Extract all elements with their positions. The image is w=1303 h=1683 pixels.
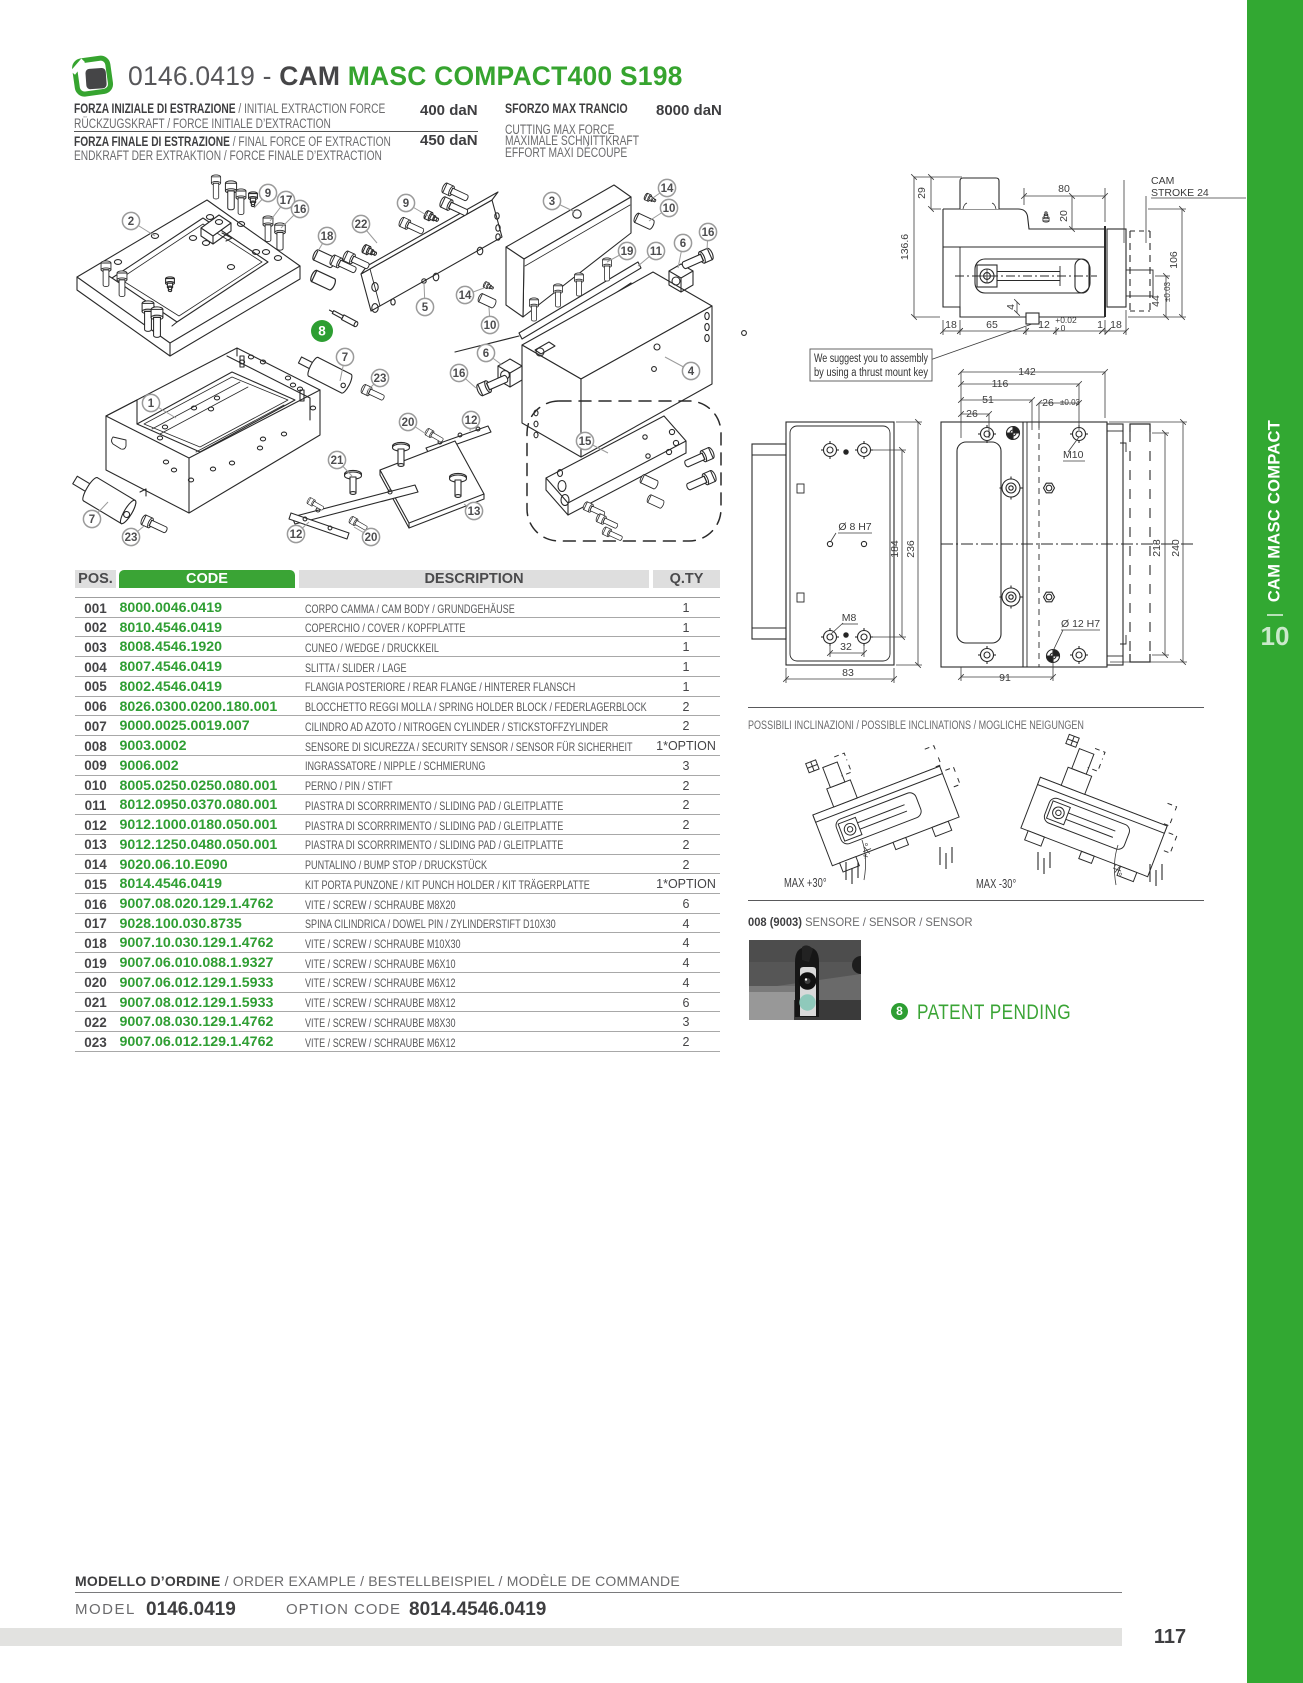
svg-text:20: 20 — [402, 417, 415, 429]
svg-text:51: 51 — [982, 394, 994, 406]
svg-text:Ø 8 H7: Ø 8 H7 — [838, 521, 871, 533]
svg-text:18: 18 — [1110, 319, 1122, 331]
svg-text:16: 16 — [453, 368, 466, 380]
svg-text:80: 80 — [1058, 183, 1070, 195]
svg-text:7: 7 — [342, 352, 348, 364]
svg-text:218: 218 — [1151, 539, 1163, 557]
svg-text:CAM: CAM — [1151, 175, 1174, 187]
svg-text:12: 12 — [290, 529, 303, 541]
svg-text:23: 23 — [374, 373, 387, 385]
svg-text:0: 0 — [1061, 323, 1066, 333]
svg-text:8: 8 — [318, 324, 326, 339]
svg-text:26: 26 — [966, 408, 978, 420]
svg-text:M8: M8 — [842, 612, 857, 624]
svg-text:16: 16 — [294, 204, 307, 216]
svg-text:Ø 12 H7: Ø 12 H7 — [1061, 618, 1100, 630]
svg-text:10: 10 — [484, 320, 497, 332]
svg-text:14: 14 — [459, 290, 472, 302]
svg-text:91: 91 — [999, 672, 1011, 684]
svg-text:13: 13 — [468, 506, 481, 518]
svg-text:17: 17 — [280, 195, 293, 207]
svg-text:29: 29 — [916, 187, 928, 199]
svg-text:240: 240 — [1170, 539, 1182, 557]
svg-text:19: 19 — [621, 246, 634, 258]
svg-text:2: 2 — [128, 216, 134, 228]
svg-text:STROKE 24: STROKE 24 — [1151, 187, 1209, 199]
svg-text:+0.02: +0.02 — [1055, 315, 1077, 325]
svg-text:236: 236 — [905, 540, 917, 558]
svg-text:116: 116 — [992, 378, 1009, 390]
svg-text:by using a thrust mount key: by using a thrust mount key — [814, 367, 928, 379]
svg-text:21: 21 — [331, 455, 344, 467]
svg-text:4: 4 — [1005, 304, 1017, 310]
svg-text:12: 12 — [1038, 319, 1050, 331]
svg-text:-X°: -X° — [1109, 862, 1123, 878]
svg-text:6: 6 — [483, 348, 489, 360]
svg-text:44: 44 — [1150, 295, 1162, 307]
svg-text:11: 11 — [650, 246, 663, 258]
svg-text:18: 18 — [321, 231, 334, 243]
svg-text:±0.03: ±0.03 — [1163, 281, 1172, 302]
svg-text:83: 83 — [842, 667, 854, 679]
svg-text:20: 20 — [1058, 210, 1070, 222]
svg-text:106: 106 — [1168, 251, 1180, 269]
svg-text:6: 6 — [680, 238, 686, 250]
svg-text:±0.03: ±0.03 — [1060, 398, 1081, 407]
svg-text:15: 15 — [579, 436, 592, 448]
svg-text:12: 12 — [465, 415, 478, 427]
svg-text:18: 18 — [945, 319, 957, 331]
svg-text:16: 16 — [702, 227, 715, 239]
svg-text:184: 184 — [889, 540, 901, 558]
svg-text:22: 22 — [355, 219, 368, 231]
svg-text:23: 23 — [125, 532, 138, 544]
svg-text:14: 14 — [661, 183, 674, 195]
svg-text:9: 9 — [265, 188, 271, 200]
svg-text:32: 32 — [840, 641, 852, 653]
svg-text:4: 4 — [688, 366, 695, 378]
svg-text:7: 7 — [89, 514, 95, 526]
svg-text:65: 65 — [986, 319, 998, 331]
svg-text:5: 5 — [422, 302, 429, 314]
svg-text:10: 10 — [663, 203, 676, 215]
svg-text:We suggest you to assembly: We suggest you to assembly — [814, 353, 928, 365]
svg-text:3: 3 — [549, 196, 555, 208]
svg-text:142: 142 — [1018, 366, 1036, 378]
svg-text:1: 1 — [1097, 319, 1103, 331]
svg-text:1: 1 — [148, 398, 155, 410]
svg-text:26: 26 — [1042, 397, 1054, 409]
svg-text:M10: M10 — [1063, 449, 1084, 461]
svg-text:136.6: 136.6 — [899, 234, 911, 260]
svg-text:20: 20 — [365, 532, 378, 544]
svg-text:9: 9 — [403, 198, 409, 210]
